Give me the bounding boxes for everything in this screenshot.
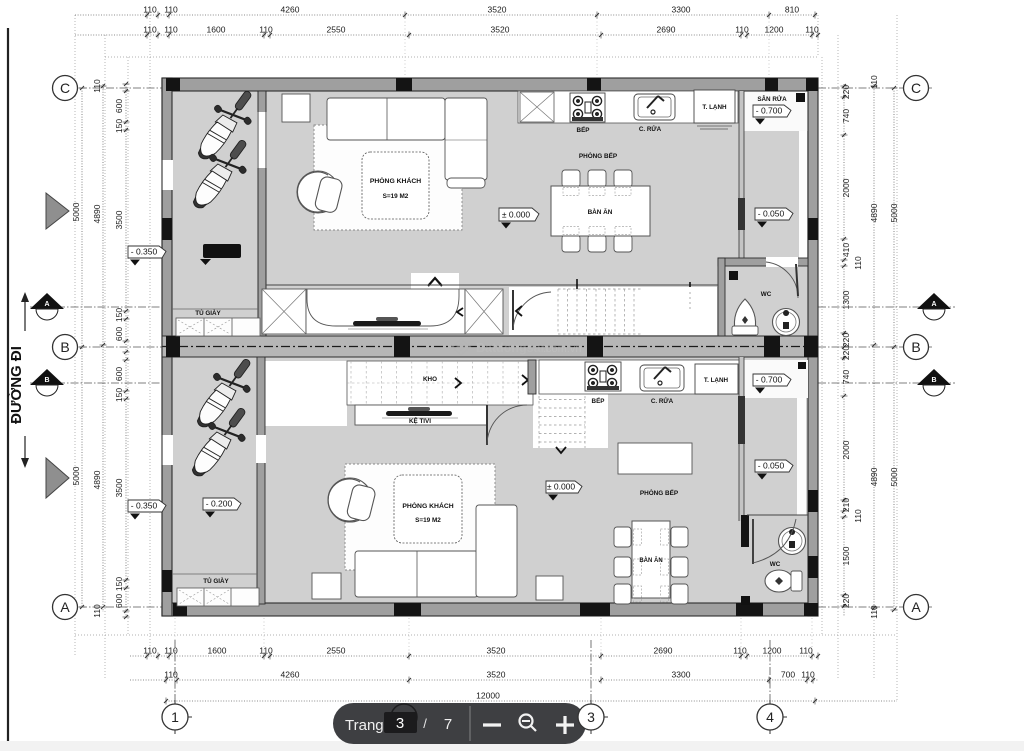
svg-text:410: 410	[841, 243, 851, 257]
svg-text:- 0.350: - 0.350	[131, 501, 158, 511]
svg-text:T. LẠNH: T. LẠNH	[704, 377, 729, 384]
svg-text:110: 110	[805, 25, 819, 35]
svg-text:1600: 1600	[207, 25, 226, 35]
svg-text:7: 7	[444, 716, 452, 733]
svg-text:5000: 5000	[71, 466, 81, 485]
svg-text:4890: 4890	[869, 203, 879, 222]
svg-text:2690: 2690	[657, 25, 676, 35]
svg-text:110: 110	[735, 25, 749, 35]
svg-text:2690: 2690	[654, 646, 673, 656]
svg-text:1: 1	[171, 709, 179, 725]
svg-text:3520: 3520	[487, 670, 506, 680]
svg-text:2550: 2550	[327, 25, 346, 35]
svg-text:.com.vn: .com.vn	[543, 343, 582, 355]
svg-text:C: C	[911, 80, 921, 96]
svg-text:600: 600	[114, 99, 124, 113]
svg-text:Trang: Trang	[345, 717, 384, 734]
svg-text:C: C	[60, 80, 70, 96]
svg-text:- 0.700: - 0.700	[756, 375, 783, 385]
svg-text:PHÒNG KHÁCH: PHÒNG KHÁCH	[402, 501, 453, 510]
svg-text:A: A	[60, 599, 70, 615]
svg-text:B: B	[931, 377, 936, 384]
svg-text:/: /	[423, 716, 427, 731]
svg-text:± 0.000: ± 0.000	[547, 482, 576, 492]
svg-text:3500: 3500	[114, 210, 124, 229]
svg-text:150: 150	[114, 308, 124, 322]
svg-text:150: 150	[114, 119, 124, 133]
svg-text:3520: 3520	[487, 646, 506, 656]
svg-text:3: 3	[587, 709, 595, 725]
svg-text:KHO: KHO	[423, 376, 437, 383]
svg-text:A: A	[931, 301, 936, 308]
svg-text:3520: 3520	[491, 25, 510, 35]
svg-text:A: A	[44, 301, 49, 308]
svg-text:12000: 12000	[476, 691, 500, 701]
svg-text:600: 600	[114, 594, 124, 608]
svg-text:110: 110	[92, 604, 102, 618]
svg-text:220: 220	[841, 594, 851, 608]
svg-text:5000: 5000	[889, 203, 899, 222]
svg-text:1300: 1300	[841, 290, 851, 309]
svg-text:150: 150	[114, 388, 124, 402]
svg-text:2000: 2000	[841, 440, 851, 459]
svg-text:- 0.200: - 0.200	[206, 499, 233, 509]
svg-text:110: 110	[143, 646, 157, 656]
svg-text:4890: 4890	[869, 467, 879, 486]
svg-text:110: 110	[259, 25, 273, 35]
svg-text:Batdongsan: Batdongsan	[476, 341, 548, 355]
svg-text:4260: 4260	[281, 5, 300, 15]
svg-text:T. LẠNH: T. LẠNH	[702, 104, 727, 111]
svg-text:110: 110	[733, 646, 747, 656]
svg-text:3500: 3500	[114, 478, 124, 497]
svg-text:B: B	[44, 377, 49, 384]
svg-text:ĐƯỜNG ĐI: ĐƯỜNG ĐI	[7, 346, 25, 424]
svg-text:2550: 2550	[327, 646, 346, 656]
svg-text:220: 220	[841, 346, 851, 360]
svg-text:3300: 3300	[672, 5, 691, 15]
svg-text:220: 220	[841, 85, 851, 99]
svg-text:SÂN RỬA: SÂN RỬA	[757, 94, 787, 103]
svg-text:3: 3	[396, 715, 404, 732]
svg-text:110: 110	[853, 509, 863, 523]
svg-text:110: 110	[164, 25, 178, 35]
svg-text:600: 600	[114, 327, 124, 341]
svg-text:WC: WC	[770, 561, 781, 568]
svg-text:3300: 3300	[672, 670, 691, 680]
svg-text:740: 740	[841, 109, 851, 123]
svg-text:110: 110	[801, 670, 815, 680]
svg-text:5000: 5000	[71, 202, 81, 221]
svg-text:210: 210	[841, 498, 851, 512]
svg-text:S=19 M2: S=19 M2	[383, 193, 409, 200]
svg-text:- 0.050: - 0.050	[758, 461, 785, 471]
svg-text:110: 110	[92, 79, 102, 93]
svg-text:BÀN ĂN: BÀN ĂN	[588, 207, 613, 216]
svg-text:1200: 1200	[763, 646, 782, 656]
svg-text:- 0.050: - 0.050	[758, 209, 785, 219]
svg-text:110: 110	[869, 75, 879, 89]
svg-text:110: 110	[259, 646, 273, 656]
svg-text:A: A	[911, 599, 921, 615]
svg-text:220: 220	[841, 333, 851, 347]
svg-text:PHÒNG KHÁCH: PHÒNG KHÁCH	[370, 176, 421, 185]
svg-text:S=19 M2: S=19 M2	[415, 517, 441, 524]
svg-text:B: B	[60, 339, 69, 355]
svg-text:2000: 2000	[841, 178, 851, 197]
svg-text:600: 600	[114, 367, 124, 381]
svg-text:4260: 4260	[281, 670, 300, 680]
svg-text:1500: 1500	[841, 546, 851, 565]
svg-text:110: 110	[164, 5, 178, 15]
svg-text:5000: 5000	[889, 467, 899, 486]
svg-text:1200: 1200	[765, 25, 784, 35]
svg-text:C. RỬA: C. RỬA	[639, 124, 662, 133]
svg-text:4: 4	[766, 709, 774, 725]
svg-text:700: 700	[781, 670, 795, 680]
svg-text:± 0.000: ± 0.000	[502, 210, 531, 220]
svg-text:KỆ TIVI: KỆ TIVI	[409, 416, 431, 425]
svg-text:4890: 4890	[92, 470, 102, 489]
svg-text:740: 740	[841, 370, 851, 384]
svg-text:110: 110	[853, 256, 863, 270]
svg-text:BÀN ĂN: BÀN ĂN	[639, 557, 662, 564]
svg-text:3520: 3520	[488, 5, 507, 15]
svg-text:TỦ GIÀY: TỦ GIÀY	[203, 576, 229, 585]
svg-text:B: B	[911, 339, 920, 355]
svg-text:110: 110	[164, 646, 178, 656]
svg-text:- 0.350: - 0.350	[131, 247, 158, 257]
svg-text:110: 110	[164, 670, 178, 680]
svg-text:- 0.700: - 0.700	[756, 106, 783, 116]
svg-text:110: 110	[143, 5, 157, 15]
svg-text:110: 110	[799, 646, 813, 656]
svg-text:C. RỬA: C. RỬA	[651, 396, 674, 405]
svg-text:110: 110	[143, 25, 157, 35]
svg-text:4890: 4890	[92, 204, 102, 223]
svg-text:WC: WC	[761, 291, 772, 298]
svg-text:810: 810	[785, 5, 799, 15]
svg-text:1600: 1600	[208, 646, 227, 656]
svg-text:150: 150	[114, 577, 124, 591]
